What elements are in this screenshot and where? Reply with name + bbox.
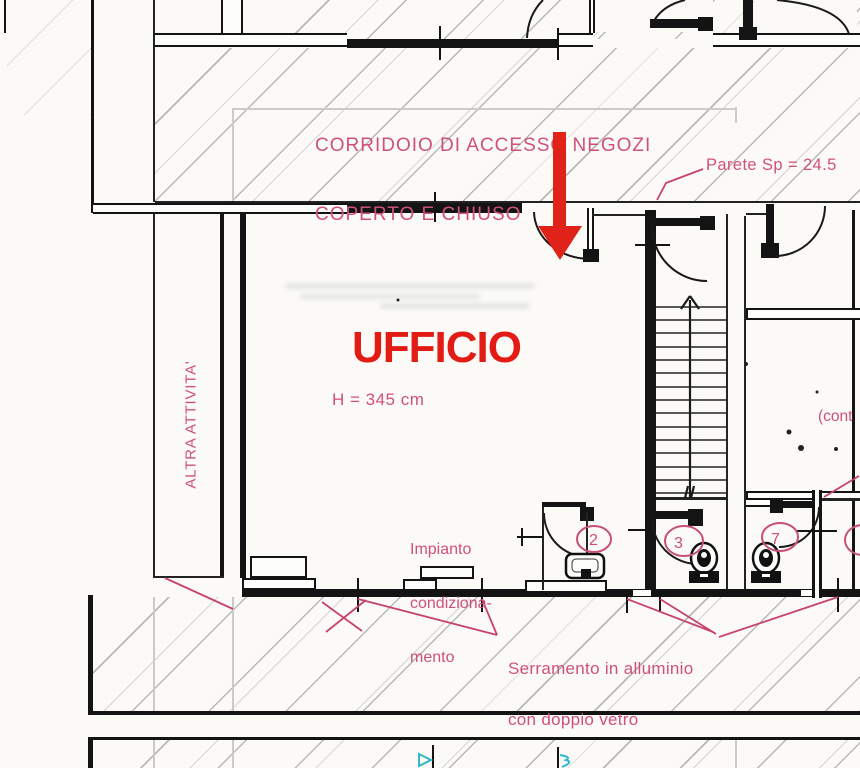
bathroom-wall — [822, 498, 860, 501]
toilet-icon — [751, 543, 781, 583]
wall-segment — [220, 213, 224, 578]
cavity-wall — [812, 490, 822, 598]
door-leaf — [586, 513, 588, 554]
door-hinge — [700, 216, 715, 230]
bottom-strip-hatch — [93, 740, 860, 768]
strip-bottom-edge — [93, 711, 860, 715]
stair-treads — [656, 307, 726, 493]
bathroom-wall — [542, 502, 544, 590]
door-hinge — [698, 17, 713, 31]
door-hinge — [739, 27, 757, 40]
wall-segment — [4, 0, 6, 33]
strip-left-wall — [88, 737, 93, 768]
ceiling-height-note: H = 345 cm — [332, 390, 424, 410]
door-hinge — [688, 509, 703, 526]
cavity-wall — [557, 33, 593, 47]
wall-segment — [153, 576, 224, 578]
window-gap — [525, 580, 607, 593]
wall-segment — [347, 39, 557, 48]
door-hinge — [761, 243, 779, 258]
hvac-note-line1: Impianto — [410, 541, 492, 559]
door-jamb — [589, 0, 595, 33]
window-note: Serramento in alluminio con doppio vetro — [508, 626, 693, 762]
scan-smudge — [380, 303, 530, 309]
window-gap — [632, 589, 652, 597]
construction-line — [735, 740, 737, 768]
construction-line — [232, 597, 234, 711]
construction-line — [232, 740, 234, 768]
toilet-icon — [689, 543, 719, 583]
office-left-wall — [240, 213, 246, 578]
cavity-wall — [713, 33, 860, 47]
wall-segment — [153, 213, 155, 578]
stair-direction-arrow-icon — [681, 296, 699, 498]
strip-top-edge — [89, 737, 860, 740]
strip-left-wall — [88, 595, 93, 715]
wall-segment — [91, 0, 94, 213]
wall-segment — [744, 216, 746, 590]
floor-plan: 2 3 7 CORRIDOIO DI ACCESSO NEGOZI COPERT… — [0, 0, 860, 768]
wall-thickness-note: Parete Sp = 24.5 — [706, 156, 837, 175]
construction-line — [153, 740, 155, 768]
corridor-label-line1: CORRIDOIO DI ACCESSO NEGOZI — [315, 134, 651, 157]
window-note-line2: con doppio vetro — [508, 711, 693, 728]
scan-smudge — [285, 283, 535, 289]
room-number-3: 3 — [674, 535, 683, 552]
stairwell-wall — [726, 214, 728, 590]
wall-segment — [746, 213, 766, 215]
sill-rect — [250, 556, 307, 578]
hvac-note: Impianto condiziona- mento — [410, 505, 492, 703]
hvac-note-line2: condiziona- — [410, 595, 492, 613]
construction-line — [153, 597, 155, 711]
top-room-cutout — [755, 0, 857, 33]
wall-segment — [852, 210, 855, 590]
office-title: UFFICIO — [352, 323, 521, 373]
room-number-7: 7 — [771, 531, 780, 548]
adjacent-room-label: ALTRA ATTIVITA' — [183, 355, 200, 495]
cavity-wall — [155, 33, 347, 47]
bathroom-wall — [656, 497, 727, 500]
corridor-label-line2: COPERTO E CHIUSO — [315, 203, 651, 226]
construction-line — [232, 108, 234, 202]
hvac-note-line3: mento — [410, 649, 492, 667]
wall-segment — [153, 0, 155, 202]
cavity-wall — [221, 0, 243, 33]
continuation-note: (cont — [818, 408, 852, 426]
door-hinge — [770, 498, 783, 513]
scan-smudge — [300, 294, 480, 299]
room-number-2: 2 — [589, 532, 598, 549]
corridor-label: CORRIDOIO DI ACCESSO NEGOZI COPERTO E CH… — [315, 88, 651, 272]
scan-specks — [397, 299, 839, 452]
construction-line — [735, 107, 737, 123]
entrance-arrow-icon — [538, 132, 582, 260]
cavity-wall — [746, 308, 860, 320]
window-note-line1: Serramento in alluminio — [508, 660, 693, 677]
hatch-top-left — [7, 0, 93, 115]
sink-icon — [566, 554, 604, 578]
